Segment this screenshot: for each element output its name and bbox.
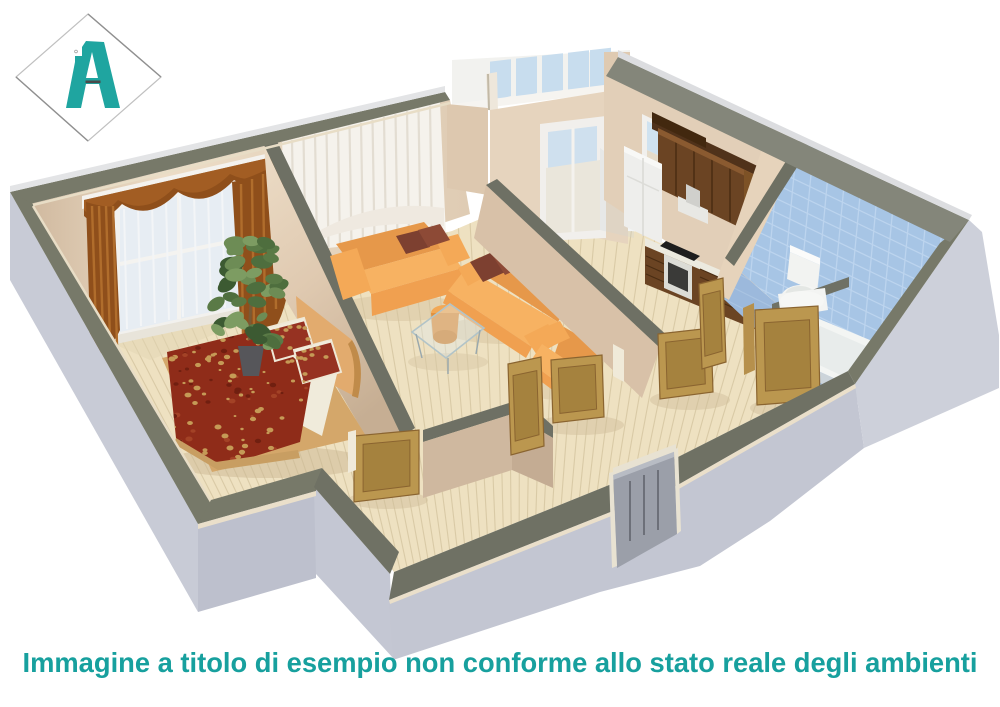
svg-text:Immagine a titolo di esempio n: Immagine a titolo di esempio non conform… (23, 647, 978, 678)
